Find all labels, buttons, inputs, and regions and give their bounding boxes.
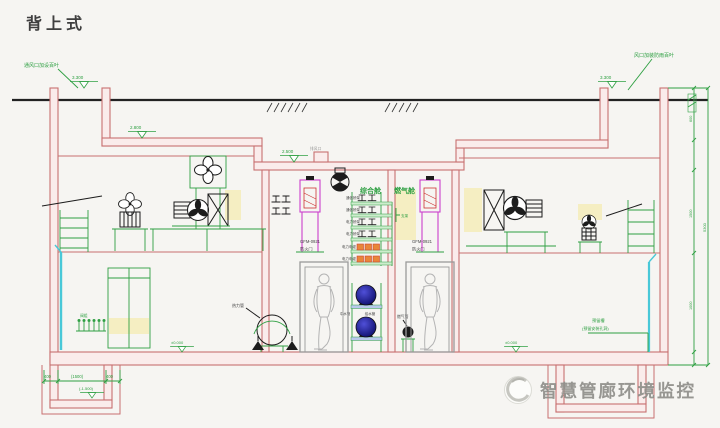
valve-group-label: 阀组	[80, 313, 88, 318]
soil-hatch	[267, 103, 418, 112]
svg-text:600: 600	[689, 116, 693, 122]
left-compartment: 阀组 热力管	[42, 156, 298, 352]
right-outer-wall	[660, 88, 668, 352]
level-text: 2.800	[130, 125, 142, 130]
door-type: 防火门	[412, 246, 425, 253]
tray-row-label: 电力桥架	[346, 219, 360, 224]
level-text: ±0.000	[505, 340, 518, 345]
vent-note-right: 风口加装防雨百叶	[634, 52, 674, 59]
compartment-label-right: 燃气舱	[393, 186, 416, 195]
reclaimed-water-label: 中水管	[340, 311, 351, 316]
total-dimension: 5300	[702, 222, 707, 232]
cable-tray-icons	[272, 196, 291, 214]
svg-text:400: 400	[106, 374, 114, 379]
level-text: 3.300	[72, 75, 84, 80]
left-vent-shaft-wall	[102, 88, 110, 146]
watermark: 智慧管廊环境监控	[505, 377, 697, 404]
svg-text:支架: 支架	[401, 213, 409, 218]
roof-step-left	[254, 146, 262, 162]
water-pipe-rack: 中水管 给水管	[340, 283, 382, 352]
level-text: 3.300	[600, 75, 612, 80]
valve-group: 阀组	[76, 313, 106, 331]
divider-wall	[388, 170, 395, 352]
center-compartments: 排风口 综合舱 燃气舱	[272, 146, 455, 352]
fire-door-left: GFM-0921 防火门	[300, 239, 348, 352]
axial-fan-icon	[503, 197, 526, 220]
door-model: GFM-0921	[412, 239, 433, 244]
tray-row-label: 电力桥架	[346, 231, 360, 236]
water-pipe-section	[356, 285, 376, 305]
roof-slab-center	[254, 162, 464, 170]
tray-row-label: 通信桥架	[346, 195, 360, 200]
small-fan-unit	[578, 215, 602, 253]
grille-unit	[526, 200, 542, 217]
right-compartment: 预留槽 (预留安装孔洞)	[466, 190, 656, 352]
roof-slab-right	[456, 140, 608, 148]
cable-rack: 通信桥架 通信桥架 电力桥架 电力桥架 电力电缆 电力电缆	[342, 192, 392, 266]
water-pipe-label: 给水管	[365, 311, 376, 316]
heat-pipe: 热力管	[232, 302, 290, 352]
drain-riser-right	[649, 254, 656, 352]
drawing-canvas: 背上式	[0, 0, 720, 428]
divider-wall	[452, 170, 459, 352]
roof-slab-left	[102, 138, 262, 146]
equipment-bench-right	[466, 232, 556, 253]
storage-tank	[108, 268, 150, 348]
fan-drum-unit	[119, 193, 142, 227]
level-text: ±0.000	[171, 340, 184, 345]
svg-text:400: 400	[44, 374, 52, 379]
tray-row-label: 电力电缆	[342, 244, 356, 249]
tray-row-label: 电力电缆	[342, 256, 356, 261]
tunnel-cross-section: 阀组 热力管	[0, 0, 720, 428]
damper-unit	[484, 190, 504, 230]
svg-text:1000: 1000	[689, 302, 693, 310]
roof-vent-label: 排风口	[310, 146, 322, 151]
leader-notes: 通风口加设百叶 风口加装防雨百叶	[24, 52, 674, 90]
heat-pipe-label: 热力管	[232, 302, 244, 308]
human-figure	[420, 274, 440, 350]
svg-text:预留槽: 预留槽	[592, 317, 605, 324]
compartment-label-left: 综合舱	[360, 186, 382, 195]
equipment-benches-left	[112, 226, 266, 251]
ladder-right	[628, 200, 654, 253]
roof-step-right	[456, 148, 464, 162]
reserve-slot-note: 预留槽 (预留安装孔洞)	[582, 317, 648, 352]
right-vent-shaft-wall	[600, 88, 608, 148]
dimension-right-chain: 600 1500 1000 5300	[668, 86, 710, 367]
level-text: (-1.500)	[79, 386, 94, 391]
vent-note-left: 通风口加设百叶	[24, 62, 59, 69]
door-model: GFM-0921	[300, 239, 321, 244]
svg-text:1500: 1500	[689, 210, 693, 218]
svg-text:(1500): (1500)	[71, 374, 84, 379]
roof-vent: 排风口	[310, 146, 328, 162]
exhaust-fan-motor	[331, 168, 349, 191]
door-type: 防火门	[300, 246, 313, 253]
fire-door-right: GFM-0921 防火门	[406, 239, 454, 352]
svg-text:(预留安装孔洞): (预留安装孔洞)	[582, 325, 609, 331]
ladder-left	[60, 210, 88, 252]
floor-slab	[50, 352, 668, 365]
level-text: 2.500	[282, 149, 294, 154]
divider-wall	[262, 170, 269, 352]
watermark-text: 智慧管廊环境监控	[540, 381, 696, 401]
human-figure	[314, 274, 334, 350]
gas-pipe-label: 燃气管	[397, 314, 409, 319]
tray-row-label: 通信桥架	[346, 207, 360, 212]
water-pipe-section	[356, 317, 376, 337]
